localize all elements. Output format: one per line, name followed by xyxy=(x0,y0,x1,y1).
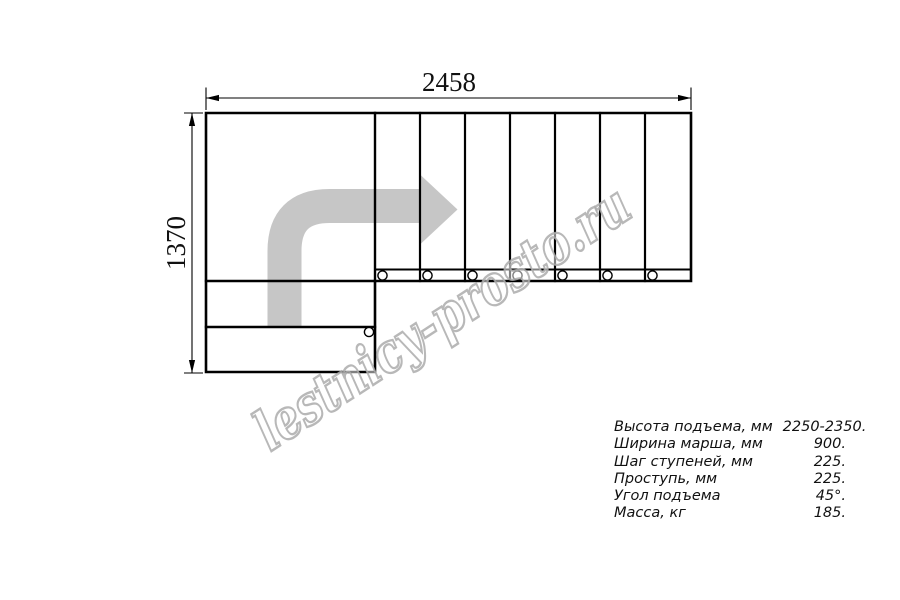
dimension-arrow-right xyxy=(678,95,691,101)
spec-value: 225. xyxy=(814,454,846,471)
height-dimension-label: 1370 xyxy=(161,216,191,270)
spec-table: Высота подъема, мм 2250-2350. Ширина мар… xyxy=(614,419,846,523)
width-dimension-label: 2458 xyxy=(422,67,476,97)
dimension-arrow-top xyxy=(189,113,195,126)
spec-label: Ширина марша, мм xyxy=(614,436,763,453)
baluster xyxy=(378,271,387,280)
width-dimension: 2458 xyxy=(206,67,691,110)
spec-label: Проступь, мм xyxy=(614,471,717,488)
dimension-arrow-bottom xyxy=(189,360,195,373)
spec-label: Масса, кг xyxy=(614,505,686,522)
spec-label: Высота подъема, мм xyxy=(614,419,773,436)
spec-value: 900. xyxy=(814,436,846,453)
baluster xyxy=(423,271,432,280)
spec-row: Ширина марша, мм 900. xyxy=(614,436,846,453)
spec-value: 45°. xyxy=(816,488,846,505)
spec-value: 2250-2350. xyxy=(783,419,867,436)
baluster xyxy=(603,271,612,280)
direction-arrow-head xyxy=(420,175,458,245)
spec-row: Угол подъема 45°. xyxy=(614,488,846,505)
spec-label: Шаг ступеней, мм xyxy=(614,454,753,471)
spec-row: Шаг ступеней, мм 225. xyxy=(614,454,846,471)
spec-value: 225. xyxy=(814,471,846,488)
staircase-drawing-page: 2458 1370 lestnicy-prosto.ru Высота подъ… xyxy=(0,0,900,600)
spec-value: 185. xyxy=(814,505,846,522)
height-dimension: 1370 xyxy=(161,113,203,373)
dimension-arrow-left xyxy=(206,95,219,101)
spec-row: Масса, кг 185. xyxy=(614,505,846,522)
spec-row: Проступь, мм 225. xyxy=(614,471,846,488)
spec-row: Высота подъема, мм 2250-2350. xyxy=(614,419,846,436)
spec-label: Угол подъема xyxy=(614,488,721,505)
baluster xyxy=(648,271,657,280)
